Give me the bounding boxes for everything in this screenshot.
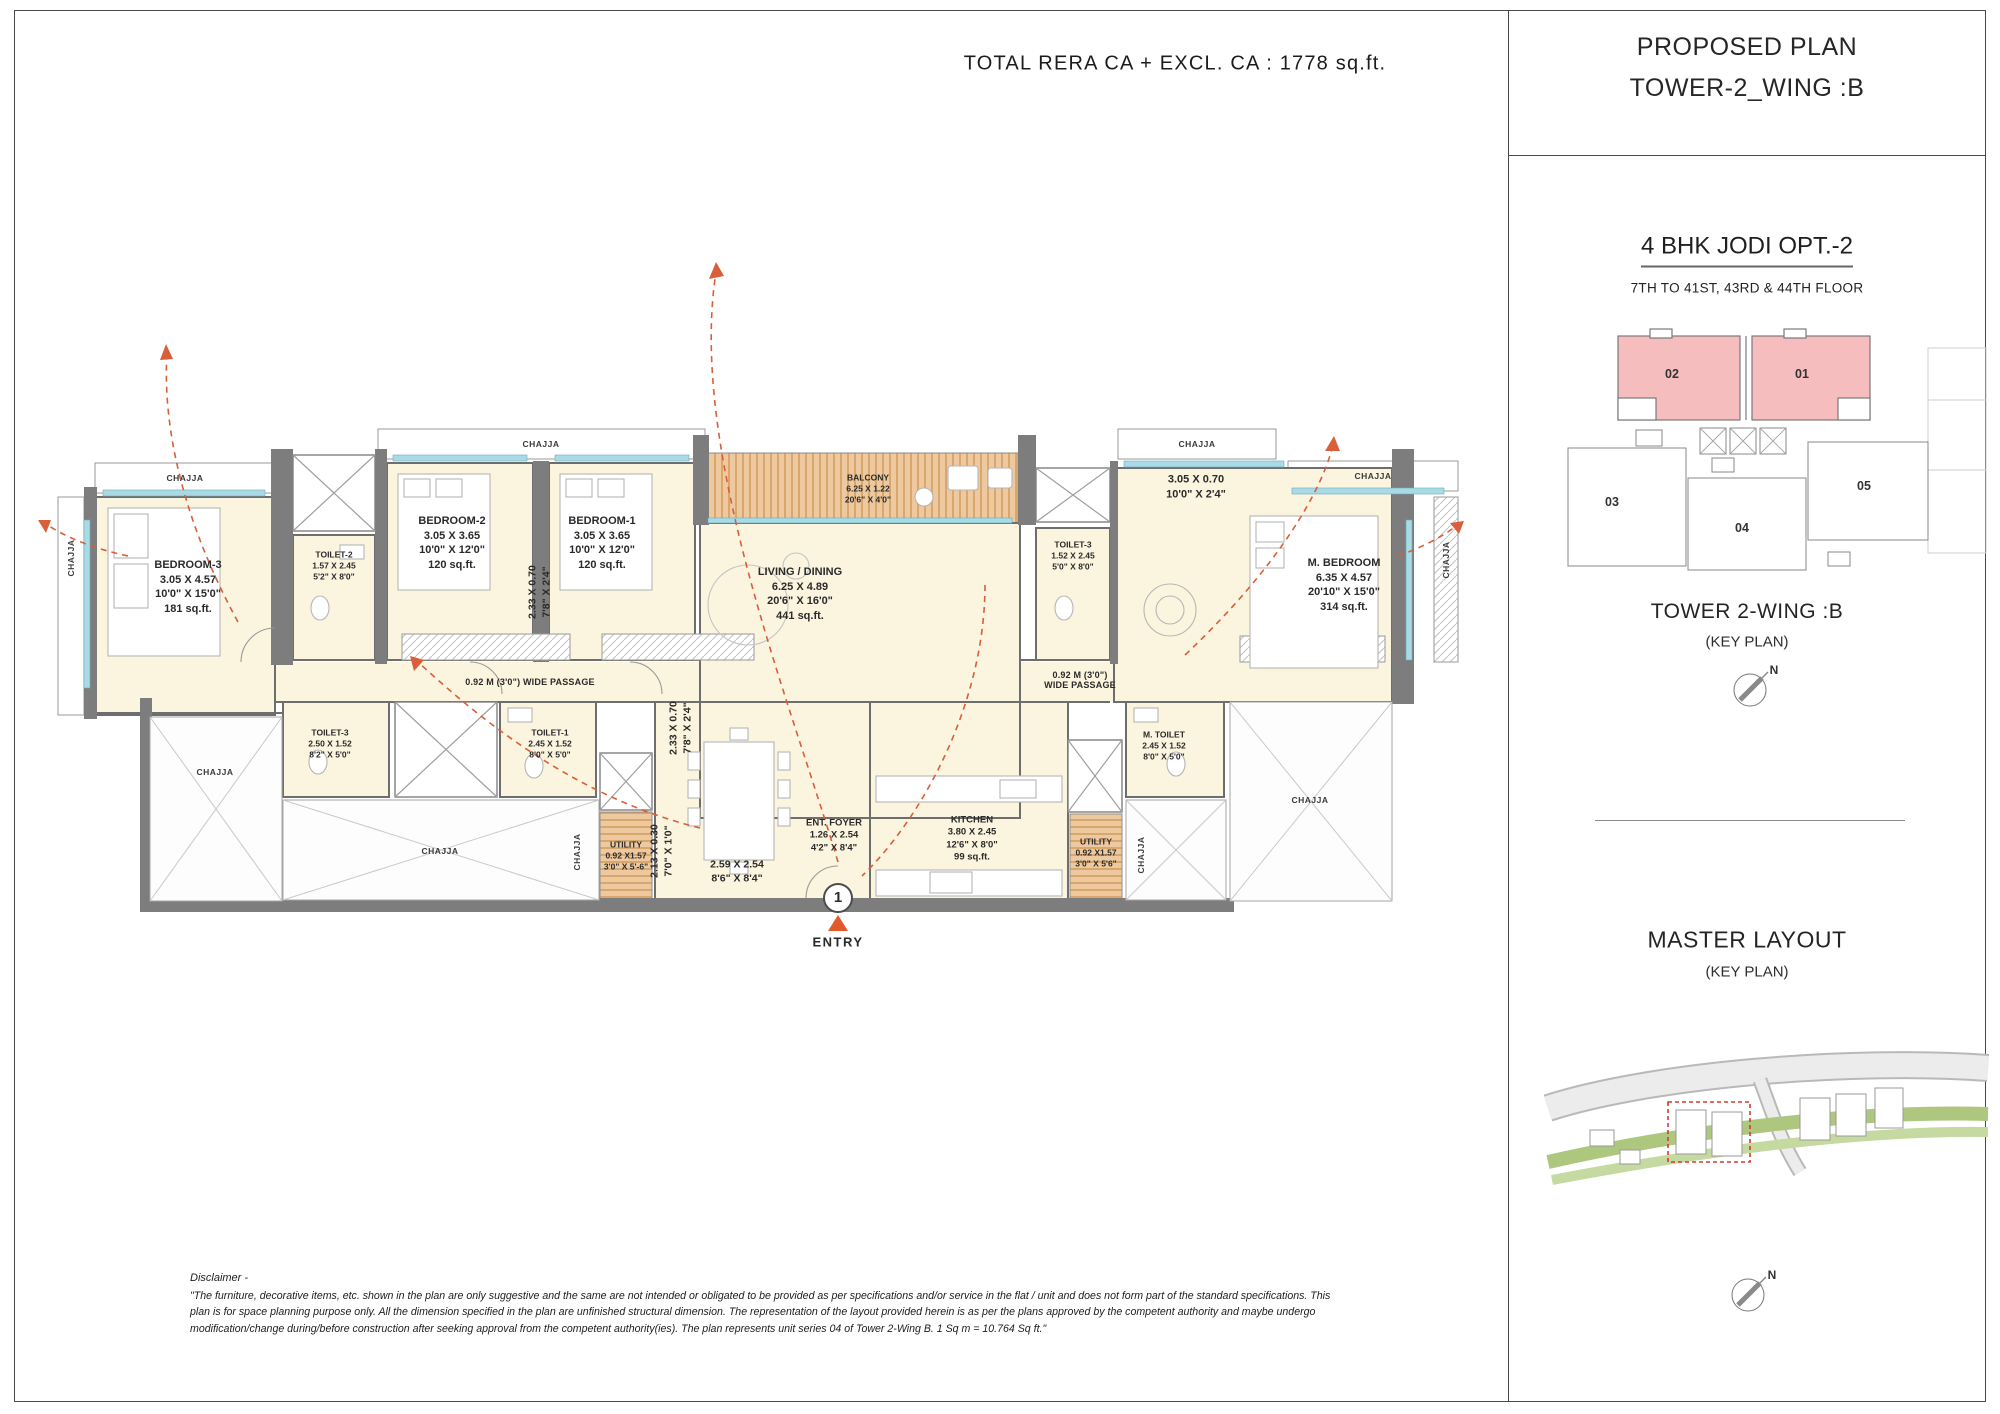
room-label-bedroom3: BEDROOM-3 3.05 X 4.57 10'0" X 15'0" 181 … [154,558,221,616]
room-name: M. BEDROOM [1308,556,1381,571]
room-label-toilet1: TOILET-1 2.45 X 1.52 8'0" X 5'0" [528,727,571,760]
room-name: TOILET-3 [308,727,351,738]
room-dim-ft: 10'0" X 12'0" [568,543,635,558]
room-dim-m: 6.25 X 4.89 [758,579,842,594]
chajja-label: CHAJJA [1291,795,1328,805]
room-dim-ft: 3'0" X 5'6" [1075,859,1116,870]
room-name: ENT. FOYER [806,817,862,829]
room-label-kitchen: KITCHEN 3.80 X 2.45 12'6" X 8'0" 99 sq.f… [946,814,998,863]
room-area: 99 sq.ft. [946,851,998,863]
dim-ft: 7'0" X 1'0" [662,824,676,878]
chajja-label: CHAJJA [522,439,559,449]
total-area-label: TOTAL RERA CA + EXCL. CA : 1778 sq.ft. [964,53,1387,76]
room-dim-m: 0.92 X1.57 [604,850,648,861]
room-dim-ft: 3'0" X 5'-6" [604,862,648,873]
key-unit-02: 02 [1665,367,1679,381]
room-label-toilet2: TOILET-2 1.57 X 2.45 5'2" X 8'0" [312,549,355,582]
panel-title: PROPOSED PLAN TOWER-2_WING :B [1630,27,1865,109]
room-label-utility-left: UTILITY 0.92 X1.57 3'0" X 5'-6" [604,839,648,872]
master-sub: (KEY PLAN) [1705,964,1788,981]
floors-label: 7TH TO 41ST, 43RD & 44TH FLOOR [1631,281,1864,296]
room-name: BEDROOM-1 [568,514,635,529]
dim-foyer-open: 2.59 X 2.54 8'6" X 8'4" [710,858,764,885]
panel-mid-divider [1595,820,1905,821]
floorplan-sheet: { "page": { "total_area_label": "TOTAL R… [0,0,2000,1414]
room-dim-m: 3.05 X 0.70 [1166,472,1226,487]
master-layout-plan [1548,1065,1988,1180]
room-dim-m: 2.45 X 1.52 [1142,740,1185,751]
room-label-toilet3-lower: TOILET-3 2.50 X 1.52 8'2" X 5'0" [308,727,351,760]
chajja-label: CHAJJA [1354,471,1391,481]
room-dim-m: 3.05 X 4.57 [154,572,221,587]
room-label-living: LIVING / DINING 6.25 X 4.89 20'6" X 16'0… [758,565,842,623]
apartment-floor-plan [38,262,1464,931]
room-dim-m: 2.45 X 1.52 [528,738,571,749]
disclaimer: Disclaimer - "The furniture, decorative … [190,1272,1335,1337]
chajja-label: CHAJJA [166,473,203,483]
chajja-label-vertical: CHAJJA [66,539,76,576]
disclaimer-title: Disclaimer - [190,1272,1335,1284]
chajja-label: CHAJJA [421,846,458,856]
room-area: 181 sq.ft. [154,602,221,617]
master-title: MASTER LAYOUT [1647,927,1846,954]
room-dim-m: 0.92 X1.57 [1075,847,1116,858]
room-label-bedroom1: BEDROOM-1 3.05 X 3.65 10'0" X 12'0" 120 … [568,514,635,572]
dim-m: 2.33 X 0.70 [667,701,681,755]
room-dim-ft: 10'0" X 12'0" [418,543,485,558]
room-name: BALCONY [845,472,891,483]
chajja-label-vertical: CHAJJA [1136,836,1146,873]
dim-m: 2.33 X 0.70 [526,565,540,619]
passage-line2: WIDE PASSAGE [1044,680,1116,690]
entry-arrow [828,915,848,931]
room-name: TOILET-3 [1051,539,1094,550]
room-area: 314 sq.ft. [1308,600,1381,615]
room-name: KITCHEN [946,814,998,826]
room-name: TOILET-1 [528,727,571,738]
room-dim-m: 1.26 X 2.54 [806,830,862,842]
entry-number-badge: 1 [823,883,853,913]
dim-niche-2: 2.13 X 0.30 7'0" X 1'0" [648,824,675,878]
panel-header-divider [1508,155,1985,156]
passage-label-right: 0.92 M (3'0") WIDE PASSAGE [1044,670,1116,690]
room-label-utility-right: UTILITY 0.92 X1.57 3'0" X 5'6" [1075,836,1116,869]
room-dim-ft: 5'2" X 8'0" [312,572,355,583]
dim-ft: 7'8" X 2'4" [681,701,695,755]
room-dim-ft: 8'2" X 5'0" [308,750,351,761]
north-label-master: N [1768,1268,1777,1282]
north-compass-tower [1734,672,1768,706]
entry-label: ENTRY [812,935,863,950]
room-dim-m: 1.57 X 2.45 [312,560,355,571]
tower-key-title: TOWER 2-WING :B [1651,600,1844,624]
drawing-layer [0,0,2000,1414]
room-dim-m: 6.35 X 4.57 [1308,570,1381,585]
room-name: BEDROOM-2 [418,514,485,529]
room-area: 441 sq.ft. [758,609,842,624]
room-dim-ft: 10'0" X 15'0" [154,587,221,602]
room-dim-ft: 8'0" X 5'0" [1142,752,1185,763]
dim-ft: 8'6" X 8'4" [710,872,764,886]
room-dim-ft: 4'2" X 8'4" [806,842,862,854]
room-dim-ft: 20'10" X 15'0" [1308,585,1381,600]
dim-m: 2.13 X 0.30 [648,824,662,878]
room-label-toilet3-upper: TOILET-3 1.52 X 2.45 5'0" X 8'0" [1051,539,1094,572]
dim-niche-1b: 2.33 X 0.70 7'8" X 2'4" [667,701,694,755]
room-label-m-toilet: M. TOILET 2.45 X 1.52 8'0" X 5'0" [1142,729,1185,762]
chajja-label-vertical: CHAJJA [1441,541,1451,578]
room-dim-m: 6.25 X 1.22 [845,483,891,494]
chajja-label: CHAJJA [196,767,233,777]
room-dim-ft: 20'6" X 16'0" [758,594,842,609]
chajja-label: CHAJJA [1178,439,1215,449]
tower-key-sub: (KEY PLAN) [1705,634,1788,651]
room-dim-m: 3.05 X 3.65 [418,528,485,543]
room-area: 120 sq.ft. [418,558,485,573]
north-label-tower: N [1770,663,1779,677]
north-compass-master [1732,1277,1766,1311]
dim-niche-1a: 2.33 X 0.70 7'8" X 2'4" [526,565,553,619]
key-unit-05: 05 [1857,479,1871,493]
key-unit-01: 01 [1795,367,1809,381]
panel-title-line1: PROPOSED PLAN [1630,27,1865,68]
panel-divider [1508,10,1509,1401]
room-dim-m: 3.80 X 2.45 [946,827,998,839]
room-dim-m: 3.05 X 3.65 [568,528,635,543]
chajja-label-vertical: CHAJJA [572,833,582,870]
room-dim-ft: 8'0" X 5'0" [528,750,571,761]
disclaimer-body: "The furniture, decorative items, etc. s… [190,1288,1335,1337]
room-name: TOILET-2 [312,549,355,560]
room-label-m-bedroom: M. BEDROOM 6.35 X 4.57 20'10" X 15'0" 31… [1308,556,1381,614]
room-dim-ft: 20'6" X 4'0" [845,495,891,506]
room-label-sitout: 3.05 X 0.70 10'0" X 2'4" [1166,472,1226,501]
panel-title-line2: TOWER-2_WING :B [1630,68,1865,109]
room-label-ent-foyer: ENT. FOYER 1.26 X 2.54 4'2" X 8'4" [806,817,862,854]
room-dim-m: 2.50 X 1.52 [308,738,351,749]
room-name: UTILITY [604,839,648,850]
key-unit-03: 03 [1605,495,1619,509]
room-dim-ft: 12'6" X 8'0" [946,839,998,851]
room-dim-ft: 5'0" X 8'0" [1051,562,1094,573]
dim-m: 2.59 X 2.54 [710,858,764,872]
tower-key-plan [1568,329,1986,570]
room-name: M. TOILET [1142,729,1185,740]
room-dim-m: 1.52 X 2.45 [1051,550,1094,561]
room-name: LIVING / DINING [758,565,842,580]
room-dim-ft: 10'0" X 2'4" [1166,487,1226,502]
room-label-balcony: BALCONY 6.25 X 1.22 20'6" X 4'0" [845,472,891,505]
room-name: BEDROOM-3 [154,558,221,573]
passage-label-left: 0.92 M (3'0") WIDE PASSAGE [465,677,594,687]
unit-type-title: 4 BHK JODI OPT.-2 [1641,233,1853,268]
dim-ft: 7'8" X 2'4" [540,565,554,619]
passage-line1: 0.92 M (3'0") [1044,670,1116,680]
room-name: UTILITY [1075,836,1116,847]
room-label-bedroom2: BEDROOM-2 3.05 X 3.65 10'0" X 12'0" 120 … [418,514,485,572]
room-area: 120 sq.ft. [568,558,635,573]
key-unit-04: 04 [1735,521,1749,535]
